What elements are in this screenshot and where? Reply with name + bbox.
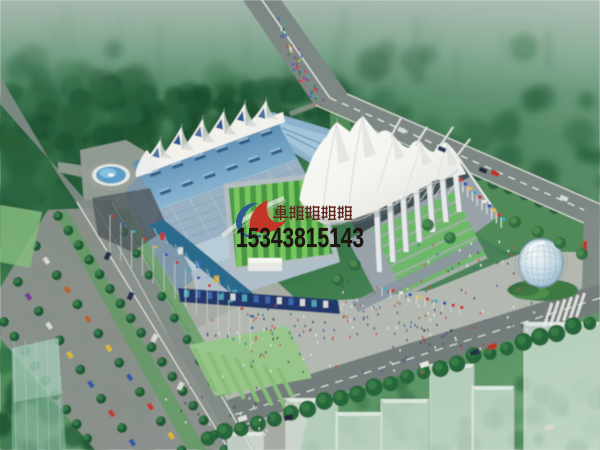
svg-text:15343815143: 15343815143 — [236, 222, 364, 253]
